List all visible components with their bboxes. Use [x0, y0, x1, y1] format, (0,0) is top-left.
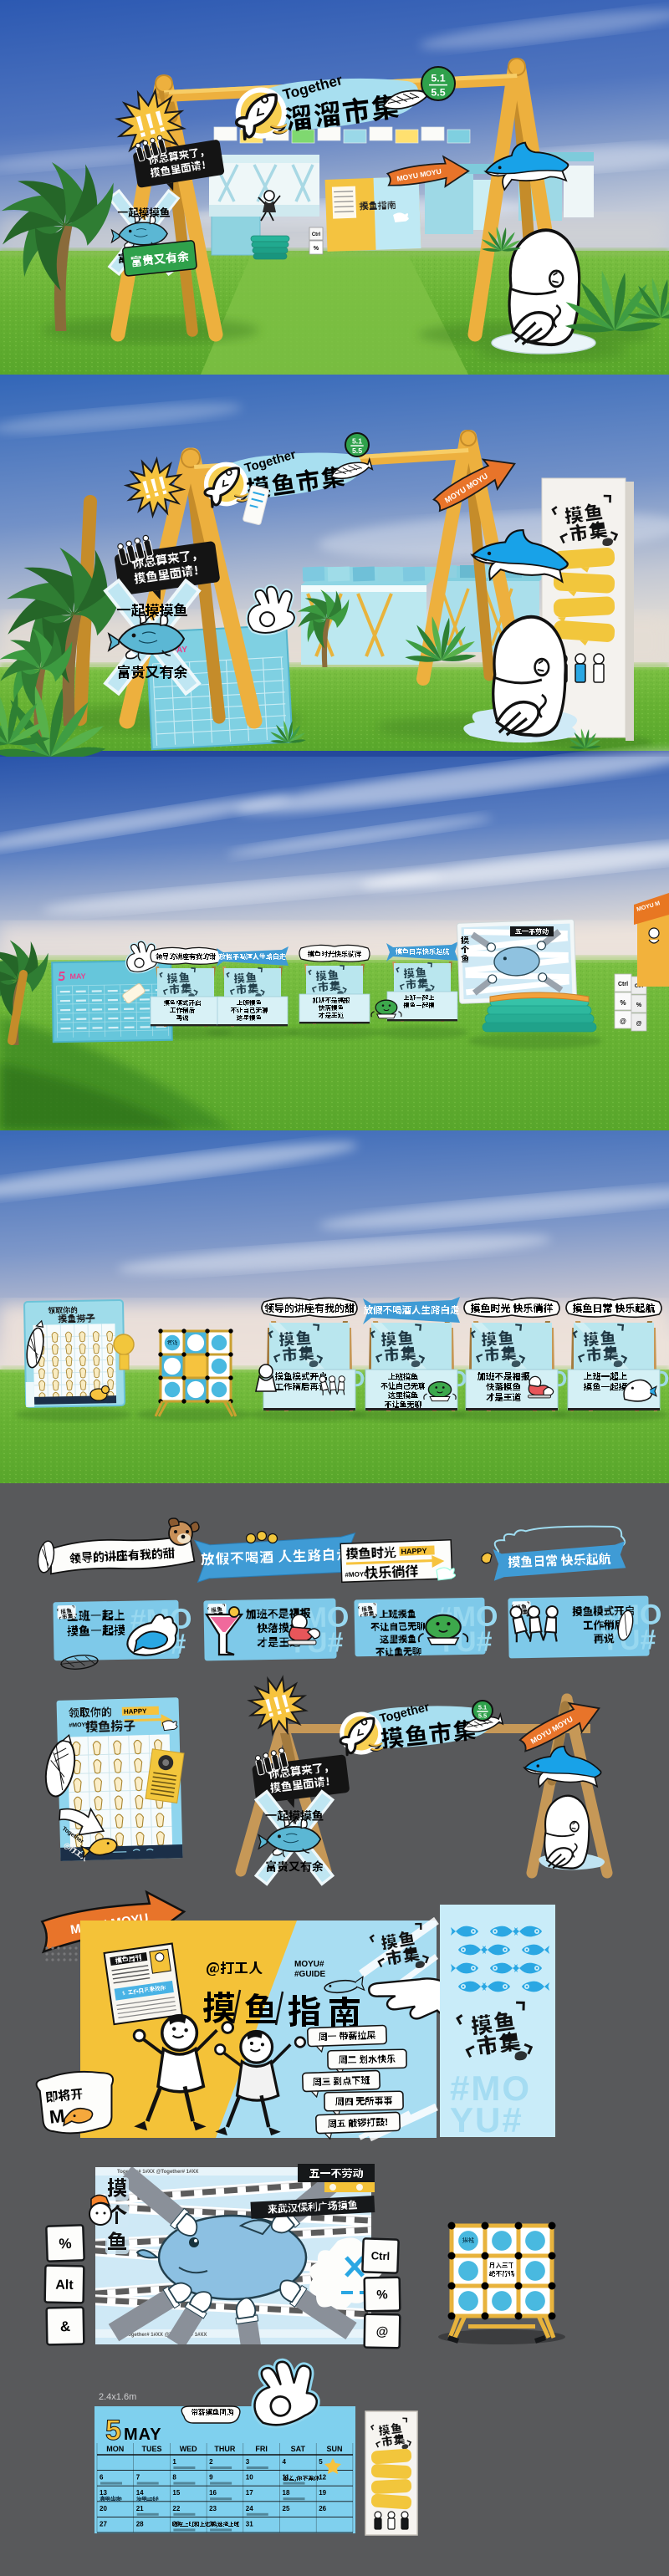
svg-text:21: 21: [136, 2505, 144, 2512]
svg-text:5.1: 5.1: [478, 1704, 487, 1711]
svg-text:9: 9: [209, 2474, 213, 2482]
svg-text:1: 1: [172, 2458, 176, 2466]
svg-text:@: @: [636, 1021, 642, 1027]
svg-text:WED: WED: [180, 2445, 197, 2453]
svg-text:27: 27: [100, 2520, 107, 2528]
svg-text:&: &: [60, 2318, 71, 2334]
svg-text:16: 16: [209, 2489, 217, 2497]
svg-text:2: 2: [209, 2458, 213, 2466]
svg-text:18: 18: [283, 2489, 290, 2497]
svg-text:31: 31: [246, 2520, 253, 2528]
svg-text:MON: MON: [106, 2445, 124, 2453]
svg-text:24: 24: [246, 2505, 253, 2512]
svg-text:Alt: Alt: [55, 2278, 74, 2293]
svg-text:@: @: [376, 2324, 389, 2339]
svg-text:Ctrl: Ctrl: [312, 232, 321, 237]
svg-text:13: 13: [100, 2489, 107, 2497]
svg-text:25: 25: [283, 2505, 290, 2512]
svg-text:5.1: 5.1: [431, 73, 445, 84]
svg-text:8: 8: [172, 2474, 176, 2482]
svg-text:6: 6: [100, 2474, 104, 2482]
svg-text:26: 26: [319, 2505, 326, 2512]
svg-text:HAPPY: HAPPY: [401, 1547, 426, 1556]
svg-text:10: 10: [246, 2474, 253, 2482]
svg-text:SUN: SUN: [326, 2445, 342, 2453]
svg-text:12: 12: [319, 2474, 326, 2482]
svg-text:HAPPY: HAPPY: [124, 1707, 147, 1716]
svg-text:MAY: MAY: [69, 972, 85, 981]
svg-text:@: @: [620, 1018, 626, 1025]
svg-text:Ctrl: Ctrl: [371, 2249, 391, 2262]
svg-text:5.1: 5.1: [352, 436, 362, 445]
svg-text:17: 17: [246, 2489, 253, 2497]
svg-text:7: 7: [136, 2474, 140, 2482]
svg-text:%: %: [636, 1002, 642, 1008]
svg-text:MAY: MAY: [124, 2426, 162, 2444]
svg-text:YU#: YU#: [450, 2100, 523, 2140]
svg-text:5.5: 5.5: [478, 1712, 487, 1720]
svg-text:FRI: FRI: [255, 2445, 268, 2453]
svg-text:M: M: [49, 2105, 66, 2128]
svg-text:20: 20: [100, 2505, 107, 2512]
svg-text:#MOYU: #MOYU: [345, 1570, 369, 1579]
svg-text:23: 23: [209, 2505, 217, 2512]
svg-text:5: 5: [105, 2415, 121, 2446]
svg-text:TUES: TUES: [141, 2445, 161, 2453]
svg-text:4: 4: [283, 2458, 287, 2466]
svg-text:MOYU#: MOYU#: [294, 1960, 324, 1969]
svg-text:%: %: [620, 999, 626, 1007]
svg-text:#GUIDE: #GUIDE: [294, 1970, 326, 1979]
svg-text:THUR: THUR: [214, 2445, 235, 2453]
svg-text:3: 3: [246, 2458, 250, 2466]
svg-text:%: %: [314, 246, 319, 252]
svg-text:%: %: [376, 2288, 388, 2302]
svg-text:%: %: [59, 2236, 72, 2252]
svg-text:5.5: 5.5: [352, 446, 362, 455]
svg-text:5: 5: [319, 2458, 323, 2466]
svg-text:Ctrl: Ctrl: [618, 982, 628, 987]
svg-text:19: 19: [319, 2489, 326, 2497]
svg-text:5.5: 5.5: [431, 86, 445, 98]
svg-text:SAT: SAT: [291, 2445, 306, 2453]
svg-text:28: 28: [136, 2520, 144, 2528]
svg-text:22: 22: [172, 2505, 180, 2512]
svg-text:14: 14: [136, 2489, 144, 2497]
svg-text:15: 15: [172, 2489, 180, 2497]
svg-text:Together# 1#XX @Together#: Together# 1#XX @Together# 1#XX: [125, 2333, 207, 2338]
svg-text:2.4x1.6m: 2.4x1.6m: [99, 2392, 136, 2402]
